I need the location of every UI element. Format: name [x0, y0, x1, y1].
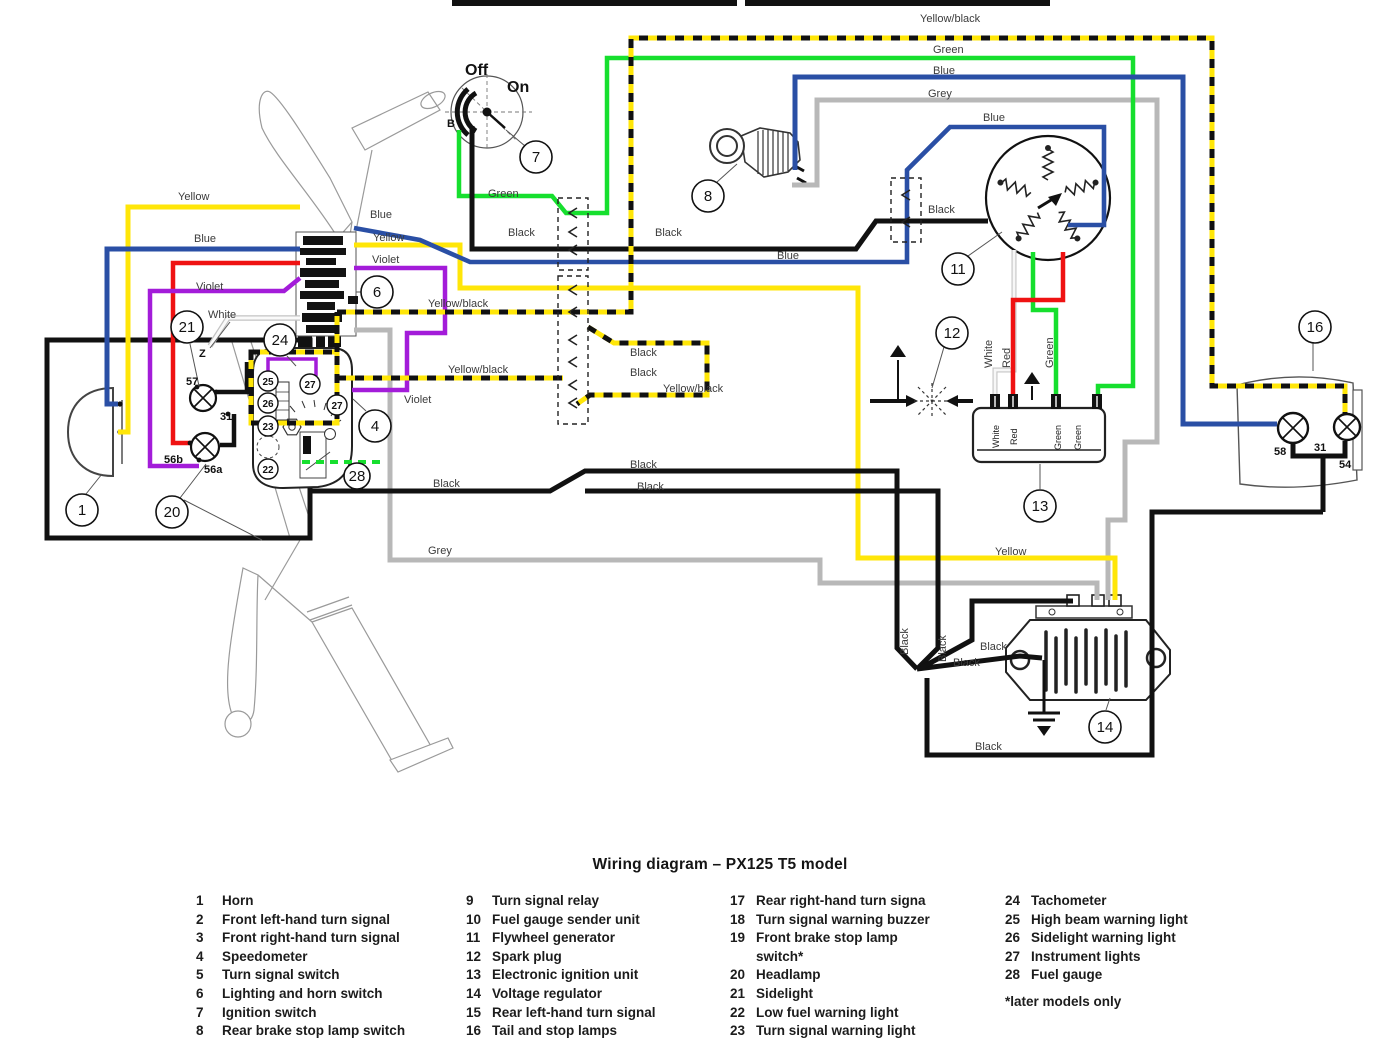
legend-label: Sidelight warning light	[1031, 929, 1176, 948]
ignition-unit-terminals	[990, 394, 1102, 409]
legend-column-4: 24Tachometer 25High beam warning light 2…	[1005, 892, 1188, 1012]
legend-num: 25	[1005, 911, 1031, 930]
label-white-left: White	[208, 309, 236, 321]
callout-27a: 27	[300, 374, 320, 394]
legend-label: Front left-hand turn signal	[222, 911, 390, 930]
label-black-right2: Black	[630, 367, 657, 379]
callout-6-num: 6	[373, 284, 381, 301]
legend-num: 19	[730, 929, 756, 948]
callout-8: 8	[692, 180, 724, 212]
mark-z: Z	[199, 348, 206, 360]
label-yellow-switch: Yellow	[373, 232, 404, 244]
legend-num	[730, 948, 756, 967]
legend-num: 8	[196, 1022, 222, 1041]
legend-item: 21Sidelight	[730, 985, 930, 1004]
legend-num: 21	[730, 985, 756, 1004]
terminal-58: 58	[1274, 446, 1286, 458]
legend-num: 24	[1005, 892, 1031, 911]
callout-16-num: 16	[1307, 319, 1324, 336]
legend-num: 12	[466, 948, 492, 967]
legend-num: 20	[730, 966, 756, 985]
legend-num: 3	[196, 929, 222, 948]
callout-20-num: 20	[164, 504, 181, 521]
legend-num: 7	[196, 1004, 222, 1023]
callout-12-num: 12	[944, 325, 961, 342]
label-yellow-black-mid1: Yellow/black	[428, 298, 489, 310]
label-black-vert1: Black	[899, 628, 911, 655]
callout-1: 1	[66, 494, 98, 526]
legend-label: Instrument lights	[1031, 948, 1141, 967]
label-blue-top: Blue	[933, 65, 955, 77]
legend-num: 16	[466, 1022, 492, 1041]
legend-item: 11Flywheel generator	[466, 929, 656, 948]
legend-label: Spark plug	[492, 948, 562, 967]
label-red-vert: Red	[1001, 348, 1013, 368]
callout-28-num: 28	[349, 468, 366, 485]
frame-arrow	[1024, 372, 1040, 384]
tail-bulb-54	[1334, 414, 1360, 440]
legend-label: Turn signal warning light	[756, 1022, 916, 1041]
legend-label: High beam warning light	[1031, 911, 1188, 930]
label-white-vert: White	[983, 340, 995, 368]
callout-16: 16	[1299, 311, 1331, 343]
label-yellow-black-right: Yellow/black	[663, 383, 724, 395]
label-violet-switch: Violet	[372, 254, 399, 266]
legend-label: Lighting and horn switch	[222, 985, 382, 1004]
callout-22: 22	[258, 459, 278, 479]
legend-item: 3Front right-hand turn signal	[196, 929, 405, 948]
legend-item: switch*	[730, 948, 930, 967]
callout-7-num: 7	[532, 149, 540, 166]
legend-item: 7Ignition switch	[196, 1004, 405, 1023]
label-black-mid1: Black	[508, 227, 535, 239]
callout-13-num: 13	[1032, 498, 1049, 515]
callout-20: 20	[156, 496, 188, 528]
legend-num: 11	[466, 929, 492, 948]
legend-label: Speedometer	[222, 948, 308, 967]
legend-item: 6Lighting and horn switch	[196, 985, 405, 1004]
label-black-right1: Black	[630, 347, 657, 359]
legend-item: 23Turn signal warning light	[730, 1022, 930, 1041]
unit13-terminal-green2: Green	[1073, 425, 1083, 450]
label-green-vert: Green	[1044, 337, 1056, 368]
legend-num: 14	[466, 985, 492, 1004]
legend-item: 27Instrument lights	[1005, 948, 1188, 967]
label-blue-inner: Blue	[983, 112, 1005, 124]
horn	[68, 388, 123, 476]
legend-num: 17	[730, 892, 756, 911]
label-yellow-bottom: Yellow	[995, 546, 1026, 558]
legend-num: 13	[466, 966, 492, 985]
terminal-57: 57	[186, 376, 198, 388]
terminal-56a: 56a	[204, 464, 223, 476]
legend-label: Front right-hand turn signal	[222, 929, 400, 948]
legend-label: Rear right-hand turn signa	[756, 892, 926, 911]
legend-item: 15Rear left-hand turn signal	[466, 1004, 656, 1023]
callout-6: 6	[361, 276, 393, 308]
legend-item: 16Tail and stop lamps	[466, 1022, 656, 1041]
legend-label: Fuel gauge sender unit	[492, 911, 640, 930]
legend-item: 18Turn signal warning buzzer	[730, 911, 930, 930]
speedo-needle-hub	[325, 429, 336, 440]
callout-23-num: 23	[262, 422, 274, 433]
callout-28: 28	[344, 463, 370, 489]
legend-label: Ignition switch	[222, 1004, 317, 1023]
legend-num: 27	[1005, 948, 1031, 967]
legend-label: Front brake stop lamp	[756, 929, 898, 948]
legend-label: Fuel gauge	[1031, 966, 1102, 985]
flywheel-generator	[986, 136, 1110, 260]
legend-label: Low fuel warning light	[756, 1004, 899, 1023]
wiring-diagram-page: Yellow/black Green Blue Grey Blue Yellow…	[0, 0, 1379, 1041]
fuel-gauge-bar	[303, 436, 311, 454]
label-black-left3: Black	[433, 478, 460, 490]
legend-num: 10	[466, 911, 492, 930]
callout-7: 7	[520, 141, 552, 173]
callout-27b-num: 27	[331, 401, 343, 412]
legend-num: 2	[196, 911, 222, 930]
terminal-56b: 56b	[164, 454, 183, 466]
tail-bulb-58	[1278, 413, 1308, 443]
label-black-right3: Black	[630, 459, 657, 471]
legend-label: Rear brake stop lamp switch	[222, 1022, 405, 1041]
legend-item: 5Turn signal switch	[196, 966, 405, 985]
legend-num: 18	[730, 911, 756, 930]
callout-4: 4	[359, 410, 391, 442]
legend-label: switch*	[756, 948, 803, 967]
voltage-regulator	[1006, 595, 1170, 700]
legend-label: Electronic ignition unit	[492, 966, 638, 985]
label-black-generator: Black	[928, 204, 955, 216]
legend-item: 19Front brake stop lamp	[730, 929, 930, 948]
label-black-vert2: Black	[937, 635, 949, 662]
lighting-horn-switch	[296, 232, 358, 336]
callout-27a-num: 27	[304, 380, 316, 391]
unit13-terminal-white: White	[991, 425, 1001, 448]
ignition-off-label: Off	[465, 62, 489, 79]
legend-item: 26Sidelight warning light	[1005, 929, 1188, 948]
legend-label: Turn signal switch	[222, 966, 340, 985]
callout-21-num: 21	[179, 319, 196, 336]
callout-8-num: 8	[704, 188, 712, 205]
legend-num: 5	[196, 966, 222, 985]
label-blue-mid: Blue	[777, 250, 799, 262]
legend-item: 10Fuel gauge sender unit	[466, 911, 656, 930]
legend-item: 13Electronic ignition unit	[466, 966, 656, 985]
legend-label: Tachometer	[1031, 892, 1107, 911]
legend-item: 20Headlamp	[730, 966, 930, 985]
wiring-diagram-canvas: Yellow/black Green Blue Grey Blue Yellow…	[0, 0, 1379, 1041]
callout-25: 25	[258, 371, 278, 391]
label-grey-top: Grey	[928, 88, 952, 100]
legend-num: 26	[1005, 929, 1031, 948]
terminal-b: B	[447, 118, 455, 130]
terminal-31-tail: 31	[1314, 442, 1326, 454]
callout-11: 11	[942, 253, 974, 285]
scan-artifact	[452, 0, 1050, 6]
callout-13: 13	[1024, 490, 1056, 522]
callout-27b: 27	[327, 395, 347, 415]
callout-1-num: 1	[78, 502, 86, 519]
legend-num: 4	[196, 948, 222, 967]
label-black-right4: Black	[637, 481, 664, 493]
legend-num: 22	[730, 1004, 756, 1023]
callout-4-num: 4	[371, 418, 379, 435]
callout-14: 14	[1089, 711, 1121, 743]
label-black-u: Black	[980, 641, 1007, 653]
legend-num: 6	[196, 985, 222, 1004]
legend-item: 4Speedometer	[196, 948, 405, 967]
legend-label: Headlamp	[756, 966, 821, 985]
legend-item: 17Rear right-hand turn signa	[730, 892, 930, 911]
label-yellow-black-mid2: Yellow/black	[448, 364, 509, 376]
legend-item: 8Rear brake stop lamp switch	[196, 1022, 405, 1041]
legend-item: 25High beam warning light	[1005, 911, 1188, 930]
label-violet-left: Violet	[196, 281, 223, 293]
callout-26: 26	[258, 393, 278, 413]
callout-24: 24	[264, 324, 296, 356]
legend-label: Horn	[222, 892, 254, 911]
legend-label: Turn signal relay	[492, 892, 599, 911]
legend-footnote-text: *later models only	[1005, 993, 1121, 1012]
callout-24-num: 24	[272, 332, 289, 349]
label-yellow-black-top: Yellow/black	[920, 13, 981, 25]
legend-num: 9	[466, 892, 492, 911]
terminal-31-head: 31	[220, 411, 232, 423]
label-black-mid2: Black	[655, 227, 682, 239]
callout-11-num: 11	[950, 261, 966, 278]
legend-column-2: 9Turn signal relay 10Fuel gauge sender u…	[466, 892, 656, 1041]
legend-item: 28Fuel gauge	[1005, 966, 1188, 985]
label-green-top: Green	[933, 44, 964, 56]
legend-label: Rear left-hand turn signal	[492, 1004, 656, 1023]
legend-num: 23	[730, 1022, 756, 1041]
label-blue-switch: Blue	[370, 209, 392, 221]
legend-label: Voltage regulator	[492, 985, 602, 1004]
headlamp-bulb-high	[190, 385, 218, 411]
label-violet-mid: Violet	[404, 394, 431, 406]
legend-num: 1	[196, 892, 222, 911]
ignition-on-label: On	[507, 79, 529, 96]
callout-14-num: 14	[1097, 719, 1114, 736]
legend-column-1: 1Horn 2Front left-hand turn signal 3Fron…	[196, 892, 405, 1041]
callout-22-num: 22	[262, 465, 274, 476]
legend-item: 22Low fuel warning light	[730, 1004, 930, 1023]
legend-label: Tail and stop lamps	[492, 1022, 617, 1041]
legend-label: Sidelight	[756, 985, 813, 1004]
unit13-terminal-green1: Green	[1053, 425, 1063, 450]
label-black-diag: Black	[953, 657, 980, 669]
callout-12: 12	[936, 317, 968, 349]
label-blue-left: Blue	[194, 233, 216, 245]
callout-25-num: 25	[262, 377, 274, 388]
legend-item: 24Tachometer	[1005, 892, 1188, 911]
unit13-terminal-red: Red	[1009, 428, 1019, 445]
label-black-bottom: Black	[975, 741, 1002, 753]
legend-label: Turn signal warning buzzer	[756, 911, 930, 930]
legend-item: 12Spark plug	[466, 948, 656, 967]
label-green-ignition: Green	[488, 188, 519, 200]
legend-item: 9Turn signal relay	[466, 892, 656, 911]
label-yellow-left: Yellow	[178, 191, 209, 203]
frame-arrow	[890, 345, 906, 357]
legend-num: 15	[466, 1004, 492, 1023]
legend-item: 1Horn	[196, 892, 405, 911]
legend-label: Flywheel generator	[492, 929, 615, 948]
diagram-title: Wiring diagram – PX125 T5 model	[470, 856, 970, 874]
legend-num: 28	[1005, 966, 1031, 985]
terminal-54: 54	[1339, 459, 1352, 471]
callout-21: 21	[171, 311, 203, 343]
callout-26-num: 26	[262, 399, 274, 410]
cable-connectors	[558, 178, 921, 424]
legend-footnote: *later models only	[1005, 993, 1188, 1012]
legend-column-3: 17Rear right-hand turn signa 18Turn sign…	[730, 892, 930, 1041]
legend-item: 2Front left-hand turn signal	[196, 911, 405, 930]
label-grey-bottom: Grey	[428, 545, 452, 557]
callout-23: 23	[258, 416, 278, 436]
legend-item: 14Voltage regulator	[466, 985, 656, 1004]
